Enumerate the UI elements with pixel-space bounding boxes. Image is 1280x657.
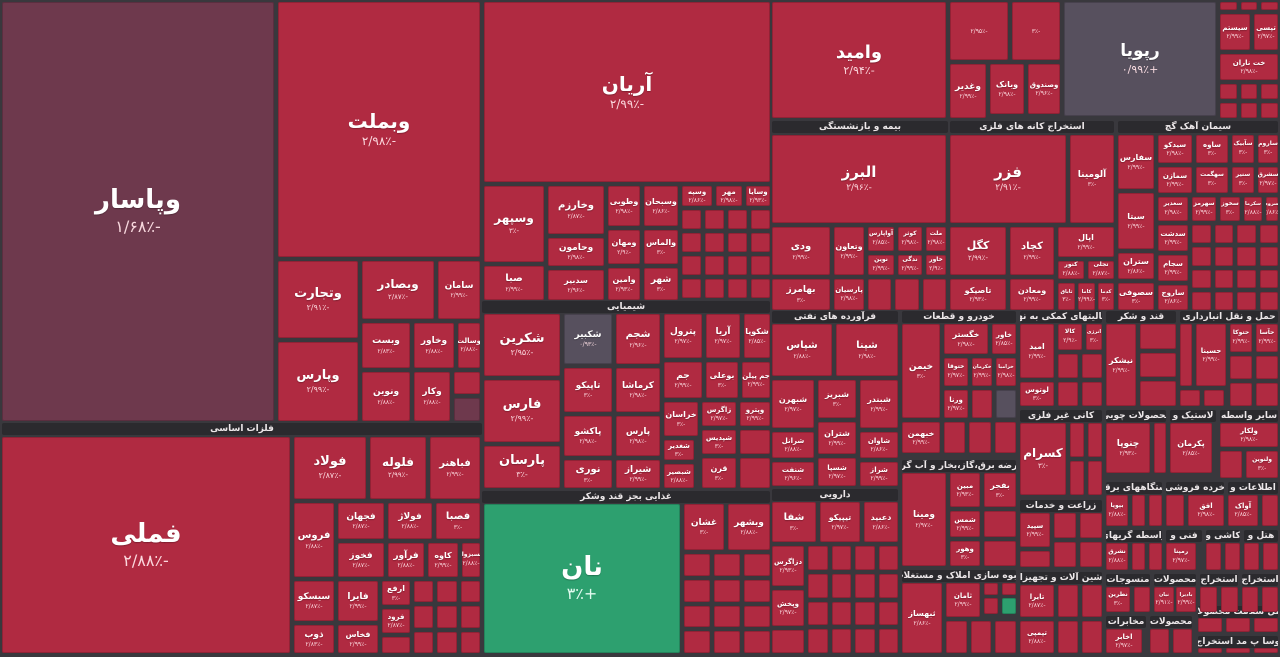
tile-unlabeled[interactable]: [1241, 2, 1258, 10]
tile-کاما[interactable]: کاما-۲/۹۹٪: [1078, 283, 1095, 310]
tile-سیتا[interactable]: سیتا-۲/۹۹٪: [1118, 193, 1154, 249]
tile-unlabeled[interactable]: [944, 422, 965, 453]
tile-وسبحان[interactable]: وسبحان-۲/۸۶٪: [644, 186, 678, 226]
tile-unlabeled[interactable]: [996, 390, 1016, 418]
tile-unlabeled[interactable]: [995, 621, 1016, 653]
tile-unlabeled[interactable]: [437, 606, 456, 627]
tile-حتوکا[interactable]: حتوکا-۲/۹۹٪: [1230, 324, 1252, 352]
tile-مبین[interactable]: مبین-۲/۹۳٪: [950, 473, 980, 507]
tile-تجلی[interactable]: تجلی-۲/۸۷٪: [1088, 261, 1114, 279]
tile-کاوه[interactable]: کاوه-۲/۹۹٪: [428, 543, 458, 577]
tile-unlabeled[interactable]: [1220, 84, 1237, 99]
tile-unlabeled[interactable]: [714, 554, 740, 576]
tile-خزامیا[interactable]: خزامیا-۲/۹۸٪: [996, 358, 1016, 386]
tile-آریان[interactable]: آریان-۲/۹۹٪: [484, 2, 770, 182]
tile-unlabeled[interactable]: [714, 631, 740, 653]
tile-وکار[interactable]: وکار-۲/۸۸٪: [414, 372, 450, 421]
tile-unlabeled[interactable]: [1198, 618, 1222, 632]
tile-unlabeled[interactable]: [832, 574, 852, 598]
tile-شراز[interactable]: شراز-۲/۹۹٪: [860, 462, 898, 486]
tile-شاوان[interactable]: شاوان-۲/۸۶٪: [860, 432, 898, 458]
tile-کگل[interactable]: کگل-۲/۹۹٪: [950, 227, 1006, 275]
tile-بپویا[interactable]: بپویا-۲/۸۸٪: [1106, 495, 1128, 526]
tile-unlabeled[interactable]: [1192, 225, 1211, 243]
tile-سنیر[interactable]: سنیر-۳٪: [1232, 167, 1254, 193]
tile-خکرمان[interactable]: خکرمان-۲/۹۹٪: [972, 358, 992, 386]
tile-صبا[interactable]: صبا-۲/۹۹٪: [484, 266, 544, 300]
tile-unlabeled[interactable]: [744, 554, 770, 576]
tile-سفارس[interactable]: سفارس-۲/۹۹٪: [1118, 135, 1154, 189]
tile-unlabeled[interactable]: [1237, 292, 1256, 310]
tile-خاور[interactable]: خاور-۲/۹٪: [926, 255, 946, 275]
tile-unlabeled[interactable]: [1150, 629, 1169, 653]
tile-شبصیر[interactable]: شبصیر-۲/۸۸٪: [664, 464, 694, 488]
tile-unlabeled[interactable]: [414, 606, 433, 627]
tile-خراسان[interactable]: خراسان-۳٪: [664, 402, 698, 436]
tile-ختوقا[interactable]: ختوقا-۲/۹۷٪: [944, 358, 968, 386]
tile-ستران[interactable]: ستران-۲/۸۶٪: [1118, 253, 1154, 279]
tile-سشرق[interactable]: سشرق-۲/۹۷٪: [1258, 167, 1278, 193]
tile-unlabeled[interactable]: [946, 621, 967, 653]
tile-سدشت[interactable]: سدشت-۲/۹۹٪: [1158, 225, 1188, 251]
tile-unlabeled[interactable]: [1082, 585, 1102, 617]
tile-رپویا[interactable]: رپویا+۰/۹۹٪: [1064, 2, 1216, 116]
tile-ساوه[interactable]: ساوه-۳٪: [1196, 135, 1228, 163]
tile-unlabeled[interactable]: [728, 279, 747, 298]
tile-unlabeled[interactable]: [1226, 648, 1250, 653]
tile-unlabeled[interactable]: [1192, 247, 1211, 265]
tile-unlabeled[interactable]: [1263, 543, 1278, 570]
tile-قرن[interactable]: قرن-۳٪: [702, 458, 736, 488]
tile-unlabeled[interactable]: [1088, 461, 1102, 495]
tile-وسالت[interactable]: وسالت-۲/۸۸٪: [458, 323, 480, 368]
tile-unlabeled[interactable]: [879, 602, 899, 626]
tile-unlabeled[interactable]: [808, 546, 828, 570]
tile-unlabeled[interactable]: [1173, 629, 1192, 653]
tile-unlabeled[interactable]: [744, 606, 770, 628]
tile-نان[interactable]: نان+۳٪: [484, 504, 680, 653]
tile-فباهنر[interactable]: فباهنر-۲/۹۹٪: [430, 437, 480, 499]
tile-تپمپی[interactable]: تپمپی-۲/۸۸٪: [1020, 621, 1054, 653]
tile-ملت[interactable]: ملت-۲/۹۸٪: [926, 227, 946, 251]
tile-unlabeled[interactable]: [1180, 324, 1192, 386]
tile-ساروم[interactable]: ساروم-۳٪: [1258, 135, 1278, 163]
tile-بفجر[interactable]: بفجر-۳٪: [984, 473, 1016, 507]
tile-وبشهر[interactable]: وبشهر-۲/۸۸٪: [728, 504, 770, 550]
tile-unlabeled[interactable]: [855, 574, 875, 598]
tile-unlabeled[interactable]: [1260, 247, 1279, 265]
tile-سهگمت[interactable]: سهگمت-۳٪: [1196, 167, 1228, 193]
tile-جم پیلن[interactable]: جم پیلن-۲/۹۹٪: [742, 362, 770, 398]
tile-unlabeled[interactable]: [1230, 383, 1252, 406]
tile-unlabeled[interactable]: [1154, 423, 1166, 473]
tile-unlabeled[interactable]: [971, 621, 992, 653]
tile-unlabeled[interactable]: [1058, 585, 1078, 617]
tile-شبهرن[interactable]: شبهرن-۲/۹۷٪: [772, 380, 814, 428]
tile-unlabeled[interactable]: [1080, 542, 1102, 567]
tile-unlabeled[interactable]: [1140, 324, 1176, 349]
tile-unlabeled[interactable]: [728, 256, 747, 275]
tile-ولکار[interactable]: ولکار-۲/۹۸٪: [1220, 423, 1278, 447]
tile-تاپیکو[interactable]: تاپیکو-۳٪: [564, 368, 612, 412]
tile-نوین[interactable]: نوین-۲/۹۹٪: [868, 255, 894, 275]
tile-unlabeled[interactable]: [1256, 383, 1278, 406]
tile-سرود[interactable]: سرود-۲/۸۶٪: [1266, 197, 1278, 221]
tile-چنوپا[interactable]: چنوپا-۲/۹۳٪: [1106, 423, 1150, 473]
tile-unlabeled[interactable]: [414, 632, 433, 653]
tile-نیشکر[interactable]: نیشکر-۲/۹۹٪: [1106, 324, 1136, 406]
tile-وغدیر[interactable]: وغدیر-۲/۹۹٪: [950, 64, 986, 118]
tile-unlabeled[interactable]: [1180, 390, 1200, 406]
tile-unlabeled[interactable]: [1070, 423, 1084, 457]
tile-unlabeled[interactable]: [1002, 598, 1016, 614]
tile-شپدیس[interactable]: شپدیس-۳٪: [702, 430, 736, 454]
tile-فولاد[interactable]: فولاد-۲/۸۷٪: [294, 437, 366, 499]
tile-unlabeled[interactable]: -۳٪: [1012, 2, 1060, 60]
tile-unlabeled[interactable]: [1204, 390, 1224, 406]
tile-unlabeled[interactable]: [751, 256, 770, 275]
tile-امید[interactable]: امید-۲/۹۹٪: [1020, 324, 1054, 378]
tile-unlabeled[interactable]: [855, 629, 875, 653]
tile-بهامرز[interactable]: بهامرز-۳٪: [772, 279, 830, 310]
tile-unlabeled[interactable]: [1054, 513, 1076, 538]
tile-unlabeled[interactable]: [1200, 587, 1217, 612]
tile-ثامان[interactable]: ثامان-۲/۹۹٪: [946, 583, 980, 617]
tile-تپسی[interactable]: تپسی-۲/۹۷٪: [1254, 14, 1278, 50]
tile-کنور[interactable]: کنور-۲/۸۸٪: [1058, 261, 1084, 279]
tile-خگستر[interactable]: خگستر-۲/۹۸٪: [944, 324, 988, 354]
tile-فرآور[interactable]: فرآور-۲/۸۸٪: [388, 543, 424, 577]
tile-ارفع[interactable]: ارفع-۳٪: [382, 581, 410, 605]
tile-unlabeled[interactable]: [808, 574, 828, 598]
tile-خاور[interactable]: خاور-۲/۸۵٪: [992, 324, 1016, 354]
tile-unlabeled[interactable]: [682, 279, 701, 298]
tile-کدما[interactable]: کدما-۳٪: [1098, 283, 1114, 310]
tile-وصندوق[interactable]: وصندوق-۲/۹۶٪: [1028, 64, 1060, 114]
tile-unlabeled[interactable]: [1261, 103, 1278, 118]
tile-شفا[interactable]: شفا-۳٪: [772, 502, 816, 542]
tile-unlabeled[interactable]: [808, 629, 828, 653]
tile-unlabeled[interactable]: [1140, 353, 1176, 378]
tile-unlabeled[interactable]: [705, 210, 724, 229]
tile-سهرمز[interactable]: سهرمز-۲/۹۹٪: [1192, 197, 1216, 221]
tile-فولاژ[interactable]: فولاژ-۲/۸۸٪: [388, 503, 432, 539]
tile-ومهان[interactable]: ومهان-۲/۹٪: [608, 230, 640, 264]
tile-unlabeled[interactable]: [744, 580, 770, 602]
tile-unlabeled[interactable]: [1237, 225, 1256, 243]
tile-unlabeled[interactable]: [1198, 648, 1222, 653]
tile-فسبزوار[interactable]: فسبزوار-۲/۸۸٪: [462, 543, 480, 577]
tile-unlabeled[interactable]: [1020, 551, 1050, 567]
tile-unlabeled[interactable]: [1002, 583, 1016, 595]
tile-آواک[interactable]: آواک-۲/۸۵٪: [1228, 495, 1258, 526]
tile-شکویا[interactable]: شکویا-۲/۸۵٪: [744, 314, 770, 358]
tile-unlabeled[interactable]: [1054, 542, 1076, 567]
tile-آریا[interactable]: آریا-۲/۹۷٪: [706, 314, 740, 358]
tile-unlabeled[interactable]: [714, 580, 740, 602]
tile-unlabeled[interactable]: [1080, 513, 1102, 538]
tile-unlabeled[interactable]: [1082, 621, 1102, 653]
tile-unlabeled[interactable]: [1261, 2, 1278, 10]
tile-ثبهساز[interactable]: ثبهساز-۲/۸۶٪: [902, 583, 942, 653]
tile-سآبیک[interactable]: سآبیک-۳٪: [1232, 135, 1254, 163]
tile-unlabeled[interactable]: [461, 606, 480, 627]
tile-پارس[interactable]: پارس-۲/۹۸٪: [616, 416, 660, 456]
tile-unlabeled[interactable]: [1215, 225, 1234, 243]
tile-ومعادن[interactable]: ومعادن-۲/۹۹٪: [1010, 279, 1054, 310]
tile-تیپیکو[interactable]: تیپیکو-۲/۹۷٪: [820, 502, 860, 542]
tile-unlabeled[interactable]: [382, 637, 410, 653]
tile-unlabeled[interactable]: [1260, 270, 1279, 288]
tile-وهور[interactable]: وهور-۳٪: [950, 541, 980, 566]
tile-شنفت[interactable]: شنفت-۲/۹۶٪: [772, 462, 814, 486]
tile-unlabeled[interactable]: [744, 631, 770, 653]
tile-شبندر[interactable]: شبندر-۲/۹۹٪: [860, 380, 898, 428]
tile-unlabeled[interactable]: [1058, 354, 1078, 378]
tile-شتران[interactable]: شتران-۲/۹۹٪: [818, 422, 856, 454]
tile-ورنا[interactable]: ورنا-۲/۹۷٪: [944, 390, 968, 418]
tile-unlabeled[interactable]: [1230, 356, 1252, 379]
tile-unlabeled[interactable]: [868, 279, 891, 310]
tile-دزاگرس[interactable]: دزاگرس-۲/۹۳٪: [772, 546, 804, 586]
tile-فرود[interactable]: فرود-۲/۸۷٪: [382, 609, 410, 633]
tile-وپاسار[interactable]: وپاسار-۱/۶۸٪: [2, 2, 274, 421]
tile-تاصیکو[interactable]: تاصیکو-۲/۹۳٪: [950, 279, 1006, 310]
tile-unlabeled[interactable]: [1088, 423, 1102, 457]
tile-غشان[interactable]: غشان-۳٪: [684, 504, 724, 550]
tile-unlabeled[interactable]: [772, 630, 804, 653]
tile-unlabeled[interactable]: [1220, 2, 1237, 10]
tile-unlabeled[interactable]: [1226, 618, 1250, 632]
tile-فملی[interactable]: فملی-۲/۸۸٪: [2, 437, 290, 653]
tile-unlabeled[interactable]: [984, 511, 1016, 537]
tile-پاکشو[interactable]: پاکشو-۲/۹۸٪: [564, 416, 612, 456]
tile-unlabeled[interactable]: [1058, 382, 1078, 406]
tile-اپال[interactable]: اپال-۲/۹۹٪: [1058, 227, 1114, 257]
tile-خیمن[interactable]: خیمن-۳٪: [902, 324, 940, 418]
tile-وتعاون[interactable]: وتعاون-۲/۹۹٪: [834, 227, 864, 275]
tile-unlabeled[interactable]: [1260, 292, 1279, 310]
tile-unlabeled[interactable]: [1220, 451, 1242, 478]
tile-unlabeled[interactable]: [1132, 543, 1145, 570]
tile-وحامون[interactable]: وحامون-۲/۹۸٪: [548, 238, 604, 266]
tile-unlabeled[interactable]: [995, 422, 1016, 453]
tile-فایرا[interactable]: فایرا-۲/۹۹٪: [338, 581, 378, 621]
tile-unlabeled[interactable]: [1082, 354, 1102, 378]
tile-وبانک[interactable]: وبانک-۲/۹۸٪: [990, 64, 1024, 114]
tile-وسپهر[interactable]: وسپهر-۳٪: [484, 186, 544, 262]
tile-سمازن[interactable]: سمازن-۲/۹۹٪: [1158, 167, 1192, 193]
tile-سجام[interactable]: سجام-۲/۹۹٪: [1158, 255, 1188, 281]
tile-شکبیر[interactable]: شکبیر-۰/۹۳٪: [564, 314, 612, 364]
tile-unlabeled[interactable]: [1134, 587, 1150, 612]
tile-وسپه[interactable]: وسپه-۲/۸۶٪: [682, 186, 712, 206]
tile-شمس[interactable]: شمس-۲/۹۹٪: [950, 511, 980, 537]
tile-unlabeled[interactable]: [1225, 543, 1240, 570]
tile-ساروج[interactable]: ساروج-۲/۸۶٪: [1158, 285, 1188, 310]
tile-unlabeled[interactable]: [728, 210, 747, 229]
tile-وخاور[interactable]: وخاور-۲/۸۸٪: [414, 323, 454, 368]
tile-unlabeled[interactable]: [740, 430, 770, 454]
tile-unlabeled[interactable]: [461, 632, 480, 653]
tile-پارسان[interactable]: پارسان-۳٪: [484, 446, 560, 488]
tile-unlabeled[interactable]: [705, 233, 724, 252]
tile-unlabeled[interactable]: [1132, 495, 1145, 526]
tile-شپاس[interactable]: شپاس-۲/۸۸٪: [772, 324, 832, 376]
tile-unlabeled[interactable]: [1082, 382, 1102, 406]
tile-unlabeled[interactable]: [1149, 495, 1162, 526]
tile-بادیرا[interactable]: بادیرا-۲/۹۹٪: [1176, 587, 1196, 612]
tile-unlabeled[interactable]: [437, 581, 456, 602]
tile-وبصادر[interactable]: وبصادر-۲/۸۷٪: [362, 261, 434, 319]
tile-ندگی[interactable]: ندگی-۲/۹۹٪: [898, 255, 922, 275]
tile-unlabeled[interactable]: [705, 256, 724, 275]
tile-تایرا[interactable]: تایرا-۲/۸۷٪: [1020, 585, 1054, 617]
tile-سخوز[interactable]: سخوز-۳٪: [1220, 197, 1240, 221]
tile-unlabeled[interactable]: [855, 546, 875, 570]
tile-unlabeled[interactable]: [684, 554, 710, 576]
tile-انرژی[interactable]: انرژی-۳٪: [1086, 324, 1102, 350]
tile-فصبا[interactable]: فصبا-۳٪: [436, 503, 480, 539]
tile-وامین[interactable]: وامین-۲/۹۳٪: [608, 268, 640, 300]
tile-نوری[interactable]: نوری-۳٪: [564, 460, 612, 488]
tile-جم[interactable]: جم-۲/۹۹٪: [664, 362, 702, 398]
tile-unlabeled[interactable]: [461, 581, 480, 602]
tile-ودی[interactable]: ودی-۲/۹۹٪: [772, 227, 830, 275]
tile-شجم[interactable]: شجم-۲/۹۶٪: [616, 314, 660, 364]
tile-unlabeled[interactable]: [923, 279, 946, 310]
tile-unlabeled[interactable]: -۲/۹۵٪: [950, 2, 1008, 60]
tile-آواپارس[interactable]: آواپارس-۲/۸۵٪: [868, 227, 894, 251]
tile-unlabeled[interactable]: [879, 546, 899, 570]
tile-unlabeled[interactable]: [832, 629, 852, 653]
tile-رمپنا[interactable]: رمپنا-۲/۹۷٪: [1166, 543, 1196, 570]
tile-unlabeled[interactable]: [984, 541, 1016, 567]
tile-unlabeled[interactable]: [832, 602, 852, 626]
tile-unlabeled[interactable]: [1192, 292, 1211, 310]
tile-unlabeled[interactable]: [1262, 495, 1278, 526]
tile-سیدکو[interactable]: سیدکو-۲/۹۸٪: [1158, 135, 1192, 163]
tile-افق[interactable]: افق-۲/۹۸٪: [1188, 495, 1224, 526]
tile-حآسا[interactable]: حآسا-۲/۹۹٪: [1256, 324, 1278, 352]
tile-دعبید[interactable]: دعبید-۲/۸۶٪: [864, 502, 898, 542]
tile-ثاباق[interactable]: ثاباق-۳٪: [1058, 283, 1075, 310]
tile-شسپا[interactable]: شسپا-۲/۹۷٪: [818, 458, 856, 486]
tile-unlabeled[interactable]: [984, 598, 998, 614]
tile-unlabeled[interactable]: [437, 632, 456, 653]
tile-unlabeled[interactable]: [1149, 543, 1162, 570]
tile-شپنا[interactable]: شپنا-۲/۹۸٪: [836, 324, 898, 376]
tile-وطوبی[interactable]: وطوبی-۲/۹۸٪: [608, 186, 640, 226]
tile-unlabeled[interactable]: [1254, 648, 1278, 653]
tile-پارسیان[interactable]: پارسیان-۲/۹۸٪: [834, 279, 864, 310]
tile-unlabeled[interactable]: [1244, 543, 1259, 570]
tile-unlabeled[interactable]: [728, 233, 747, 252]
tile-unlabeled[interactable]: [1242, 587, 1258, 612]
tile-unlabeled[interactable]: [1260, 225, 1279, 243]
tile-unlabeled[interactable]: [808, 602, 828, 626]
tile-وسایا[interactable]: وسایا-۲/۹۳٪: [746, 186, 770, 206]
tile-unlabeled[interactable]: [1237, 270, 1256, 288]
tile-شغدیر[interactable]: شغدیر-۳٪: [664, 440, 694, 460]
tile-شیراز[interactable]: شیراز-۲/۹۹٪: [616, 460, 660, 488]
tile-unlabeled[interactable]: [751, 279, 770, 298]
tile-شهر[interactable]: شهر-۳٪: [644, 268, 678, 300]
tile-سکرما[interactable]: سکرما-۲/۸۸٪: [1244, 197, 1262, 221]
tile-unlabeled[interactable]: [895, 279, 918, 310]
tile-وتجارت[interactable]: وتجارت-۲/۹۱٪: [278, 261, 358, 338]
tile-فلوله[interactable]: فلوله-۲/۹۹٪: [370, 437, 426, 499]
tile-unlabeled[interactable]: [1070, 461, 1084, 495]
tile-فخاس[interactable]: فخاس-۲/۹۹٪: [338, 625, 378, 653]
tile-unlabeled[interactable]: [714, 606, 740, 628]
tile-unlabeled[interactable]: [1058, 621, 1078, 653]
tile-unlabeled[interactable]: [454, 372, 480, 394]
tile-پترول[interactable]: پترول-۲/۹۷٪: [664, 314, 702, 358]
tile-unlabeled[interactable]: [1254, 618, 1278, 632]
tile-unlabeled[interactable]: [832, 546, 852, 570]
tile-unlabeled[interactable]: [682, 256, 701, 275]
tile-پکرمان[interactable]: پکرمان-۲/۸۵٪: [1170, 423, 1212, 473]
tile-وبملت[interactable]: وبملت-۲/۹۸٪: [278, 2, 480, 257]
tile-unlabeled[interactable]: [1215, 270, 1234, 288]
tile-unlabeled[interactable]: [684, 606, 710, 628]
tile-کوثر[interactable]: کوثر-۲/۹۸٪: [898, 227, 922, 251]
tile-وپترو[interactable]: وپترو-۲/۹۹٪: [740, 402, 770, 426]
tile-ومینا[interactable]: ومینا-۲/۹۷٪: [902, 473, 946, 566]
tile-unlabeled[interactable]: [414, 581, 433, 602]
tile-unlabeled[interactable]: [682, 210, 701, 229]
tile-unlabeled[interactable]: [751, 210, 770, 229]
tile-بوعلی[interactable]: بوعلی-۳٪: [706, 362, 738, 398]
tile-unlabeled[interactable]: [684, 580, 710, 602]
tile-unlabeled[interactable]: [1140, 381, 1176, 406]
tile-سغدیر[interactable]: سغدیر-۲/۹۸٪: [1158, 197, 1188, 221]
tile-فروس[interactable]: فروس-۲/۸۸٪: [294, 503, 334, 577]
tile-شبریز[interactable]: شبریز-۳٪: [818, 380, 856, 418]
tile-سیستم[interactable]: سیستم-۲/۹۹٪: [1220, 14, 1250, 50]
tile-سصوفی[interactable]: سصوفی-۳٪: [1118, 283, 1154, 310]
tile-unlabeled[interactable]: [1206, 543, 1221, 570]
tile-فزر[interactable]: فزر-۲/۹۱٪: [950, 135, 1066, 223]
tile-وپخش[interactable]: وپخش-۲/۹۷٪: [772, 590, 804, 626]
tile-unlabeled[interactable]: [1261, 84, 1278, 99]
tile-unlabeled[interactable]: [1220, 103, 1237, 118]
tile-unlabeled[interactable]: [879, 574, 899, 598]
tile-unlabeled[interactable]: [751, 233, 770, 252]
tile-شکرین[interactable]: شکرین-۲/۹۵٪: [484, 314, 560, 376]
tile-کچاد[interactable]: کچاد-۲/۹۹٪: [1010, 227, 1054, 275]
tile-زاگرس[interactable]: زاگرس-۲/۹۷٪: [702, 402, 736, 426]
tile-البرز[interactable]: البرز-۲/۹۶٪: [772, 135, 946, 223]
tile-unlabeled[interactable]: [705, 279, 724, 298]
tile-unlabeled[interactable]: [1192, 270, 1211, 288]
tile-unlabeled[interactable]: [682, 233, 701, 252]
tile-unlabeled[interactable]: [1237, 247, 1256, 265]
tile-والماس[interactable]: والماس-۳٪: [644, 230, 678, 264]
tile-unlabeled[interactable]: [1215, 247, 1234, 265]
tile-unlabeled[interactable]: [684, 631, 710, 653]
tile-unlabeled[interactable]: [1256, 356, 1278, 379]
tile-نشرق[interactable]: نشرق-۲/۸۸٪: [1106, 543, 1128, 570]
tile-خت ناران[interactable]: خت ناران-۲/۹۸٪: [1220, 54, 1278, 80]
tile-وپارس[interactable]: وپارس-۲/۹۹٪: [278, 342, 358, 421]
tile-آلومینا[interactable]: آلومینا-۳٪: [1070, 135, 1114, 223]
tile-وبست[interactable]: وبست-۲/۸۳٪: [362, 323, 410, 368]
tile-سامان[interactable]: سامان-۲/۹۹٪: [438, 261, 480, 319]
tile-شرانل[interactable]: شرانل-۲/۸۸٪: [772, 432, 814, 458]
tile-سپید[interactable]: سپید-۲/۹۹٪: [1020, 513, 1050, 547]
